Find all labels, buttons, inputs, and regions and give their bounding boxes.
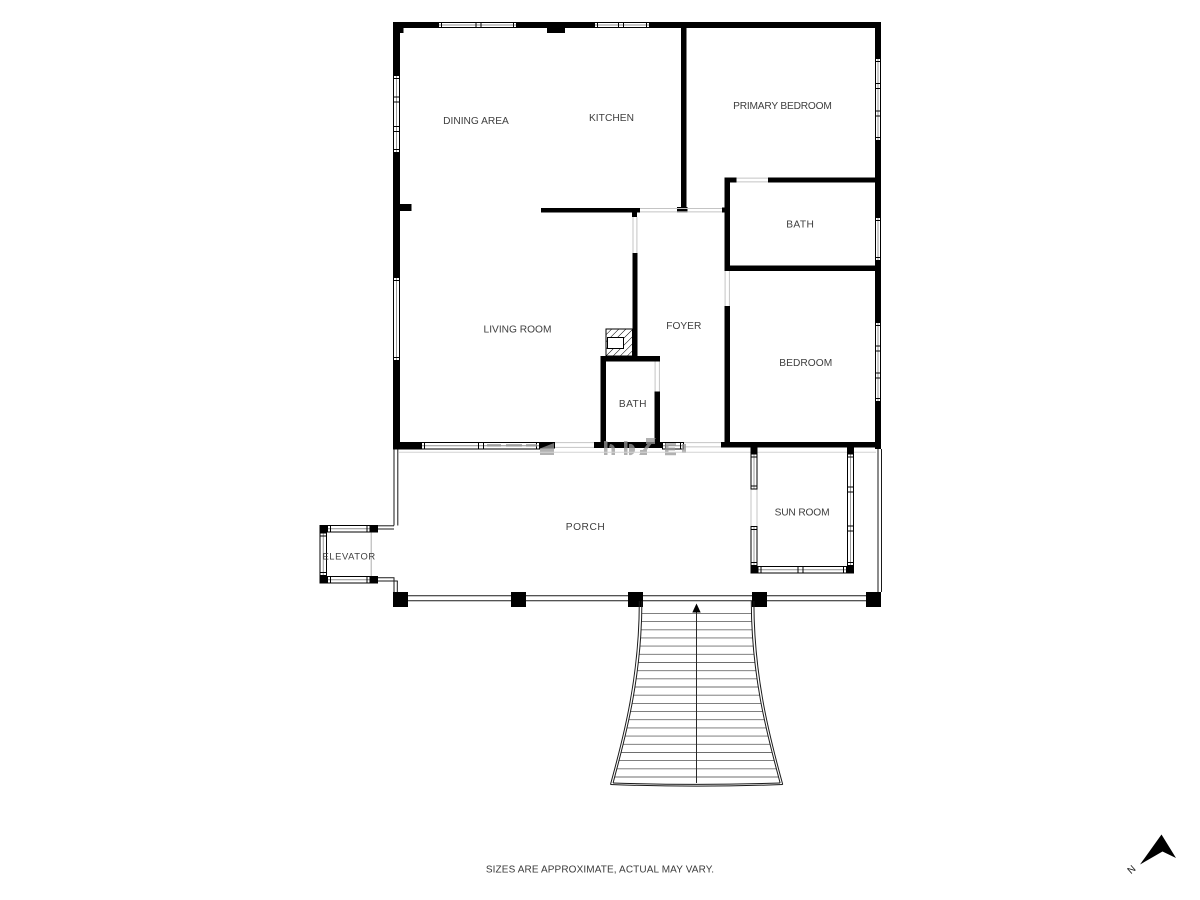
svg-text:DINING AREA: DINING AREA xyxy=(443,116,509,127)
svg-text:BATH: BATH xyxy=(619,399,647,410)
svg-text:SIZES ARE APPROXIMATE, ACTUAL: SIZES ARE APPROXIMATE, ACTUAL MAY VARY. xyxy=(486,865,714,876)
svg-text:FOYER: FOYER xyxy=(666,321,701,332)
svg-text:BEDROOM: BEDROOM xyxy=(779,358,832,369)
svg-text:PRIMARY BEDROOM: PRIMARY BEDROOM xyxy=(733,101,832,112)
svg-text:BATH: BATH xyxy=(786,220,814,231)
svg-text:LIVING ROOM: LIVING ROOM xyxy=(484,325,552,336)
svg-text:ELEVATOR: ELEVATOR xyxy=(322,551,375,562)
svg-text:KITCHEN: KITCHEN xyxy=(589,113,634,124)
svg-text:PORCH: PORCH xyxy=(566,522,606,533)
svg-text:SUN ROOM: SUN ROOM xyxy=(775,507,830,518)
